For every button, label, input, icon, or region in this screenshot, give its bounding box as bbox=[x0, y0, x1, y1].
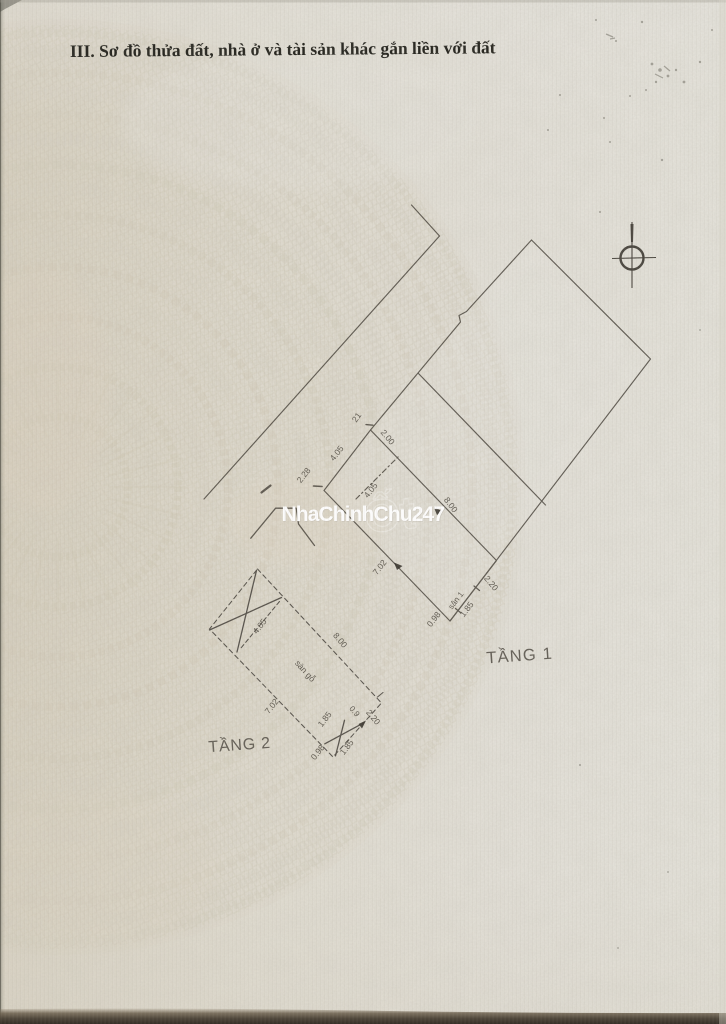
svg-text:NhaChinhChu247: NhaChinhChu247 bbox=[282, 503, 446, 526]
svg-text:III. Sơ đồ thửa đất, nhà ở và: III. Sơ đồ thửa đất, nhà ở và tài sản kh… bbox=[70, 37, 496, 61]
